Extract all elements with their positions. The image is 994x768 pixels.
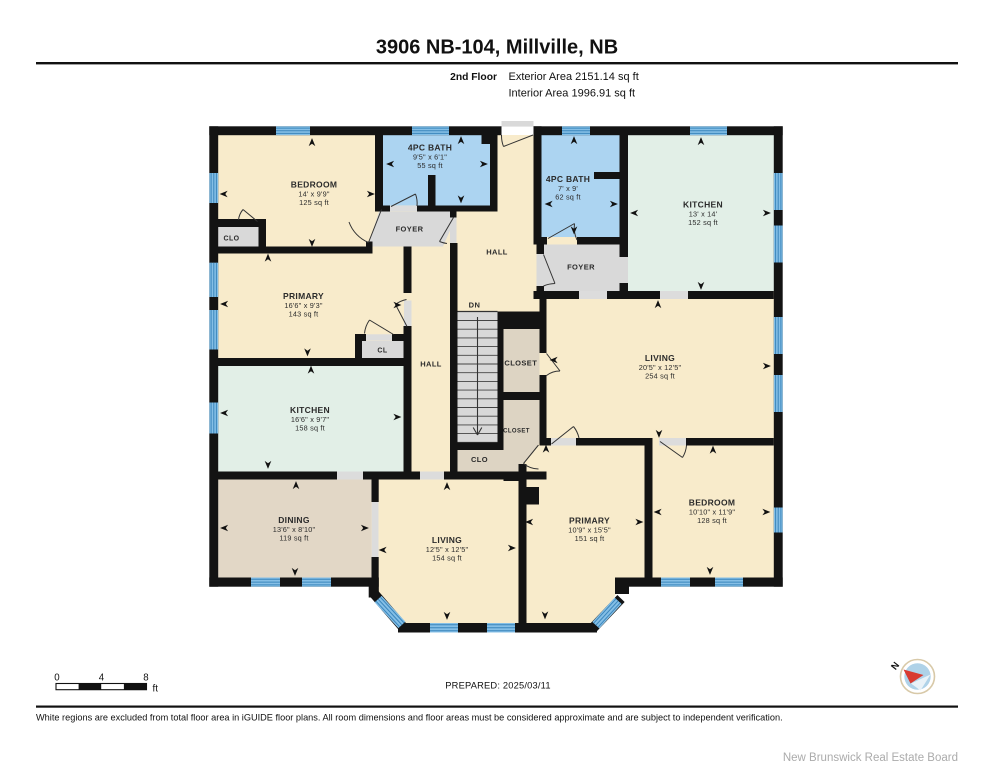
svg-text:CL: CL [377, 348, 387, 355]
svg-text:FOYER: FOYER [567, 263, 595, 272]
svg-text:4PC BATH: 4PC BATH [546, 174, 590, 184]
svg-text:HALL: HALL [486, 248, 508, 257]
svg-text:Interior Area 1996.91 sq ft: Interior Area 1996.91 sq ft [509, 87, 636, 99]
svg-text:LIVING: LIVING [432, 535, 462, 545]
svg-text:3906 NB-104, Millville, NB: 3906 NB-104, Millville, NB [376, 37, 618, 59]
svg-text:LIVING: LIVING [645, 353, 675, 363]
svg-text:DINING: DINING [278, 515, 310, 525]
svg-text:154 sq ft: 154 sq ft [432, 554, 462, 563]
svg-text:CLOSET: CLOSET [504, 358, 537, 367]
svg-text:13' x 14': 13' x 14' [689, 209, 718, 218]
svg-text:KITCHEN: KITCHEN [683, 200, 723, 210]
svg-text:CLOSET: CLOSET [503, 429, 530, 435]
svg-text:152 sq ft: 152 sq ft [688, 218, 718, 227]
svg-text:BEDROOM: BEDROOM [291, 180, 338, 190]
svg-text:143 sq ft: 143 sq ft [289, 310, 319, 319]
svg-text:16'6" x 9'3": 16'6" x 9'3" [284, 301, 323, 310]
svg-text:10'10" x 11'9": 10'10" x 11'9" [689, 507, 736, 516]
svg-text:0: 0 [54, 673, 60, 684]
svg-text:10'9" x 15'5": 10'9" x 15'5" [568, 525, 611, 534]
svg-text:158 sq ft: 158 sq ft [295, 424, 325, 433]
svg-text:Exterior Area 2151.14 sq ft: Exterior Area 2151.14 sq ft [509, 71, 639, 83]
svg-text:7' x 9': 7' x 9' [558, 184, 578, 193]
svg-text:CLO: CLO [224, 236, 240, 243]
svg-text:13'6" x 8'10": 13'6" x 8'10" [273, 525, 316, 534]
svg-text:PRIMARY: PRIMARY [569, 516, 610, 526]
svg-text:119 sq ft: 119 sq ft [279, 534, 308, 543]
svg-text:151 sq ft: 151 sq ft [575, 534, 605, 543]
svg-text:8: 8 [143, 673, 148, 684]
svg-text:55 sq ft: 55 sq ft [417, 161, 443, 170]
svg-text:PRIMARY: PRIMARY [283, 291, 324, 301]
svg-text:ft: ft [153, 684, 159, 695]
svg-text:12'5" x 12'5": 12'5" x 12'5" [426, 545, 469, 554]
svg-text:16'6" x 9'7": 16'6" x 9'7" [291, 415, 330, 424]
svg-text:128 sq ft: 128 sq ft [697, 516, 727, 525]
svg-text:KITCHEN: KITCHEN [290, 405, 330, 415]
svg-text:BEDROOM: BEDROOM [689, 498, 736, 508]
svg-text:254 sq ft: 254 sq ft [645, 372, 675, 381]
svg-text:62 sq ft: 62 sq ft [555, 193, 581, 202]
svg-text:14' x 9'9": 14' x 9'9" [298, 189, 330, 198]
svg-text:DN: DN [469, 301, 481, 310]
svg-text:9'5" x 6'1": 9'5" x 6'1" [413, 152, 447, 161]
svg-text:125 sq ft: 125 sq ft [299, 198, 329, 207]
svg-text:20'5" x 12'5": 20'5" x 12'5" [639, 363, 682, 372]
svg-text:FOYER: FOYER [396, 225, 424, 234]
svg-text:2nd Floor: 2nd Floor [450, 72, 497, 83]
svg-text:4: 4 [99, 673, 105, 684]
svg-text:New Brunswick Real Estate Boar: New Brunswick Real Estate Board [783, 752, 958, 764]
svg-text:White regions are excluded fro: White regions are excluded from total fl… [36, 713, 783, 723]
svg-text:4PC BATH: 4PC BATH [408, 143, 452, 153]
svg-text:CLO: CLO [471, 455, 488, 464]
svg-text:PREPARED: 2025/03/11: PREPARED: 2025/03/11 [445, 680, 550, 690]
svg-text:HALL: HALL [420, 360, 442, 369]
